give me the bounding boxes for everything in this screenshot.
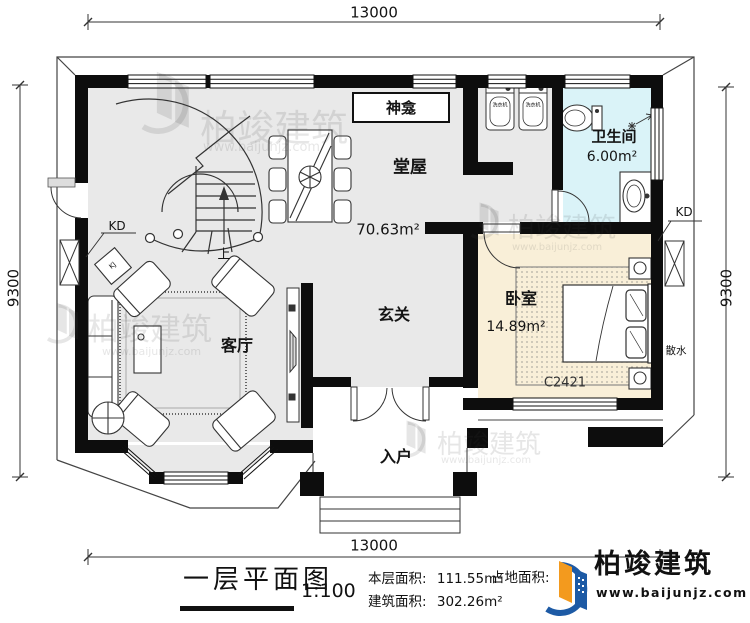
window-c2421: [513, 398, 617, 410]
room-area-bedroom: 14.89m²: [486, 320, 545, 334]
room-label-shrine: 神龛: [352, 92, 450, 123]
window: [488, 75, 526, 88]
brand-logo-icon: [539, 551, 595, 617]
room-label-main-hall: 堂屋: [393, 160, 427, 177]
window: [413, 75, 456, 88]
sofa: [88, 296, 118, 417]
room-label-living-room: 客厅: [221, 338, 253, 354]
porch-column: [453, 472, 477, 496]
build-area-value: 302.26m²: [437, 594, 503, 610]
window: [128, 75, 206, 88]
ac-outdoor-unit-right: [665, 241, 684, 286]
title-underline: [180, 606, 294, 611]
side-door-leaf: [48, 178, 75, 187]
floor-area-row: 本层面积: 111.55m²: [368, 573, 503, 587]
build-area-row: 建筑面积: 302.26m²: [368, 596, 503, 610]
washer-label: 洗衣机: [492, 104, 507, 109]
tv-cabinet: [287, 288, 299, 422]
ac-outdoor-unit-left: [60, 240, 79, 285]
brand-website: www.baijunjz.com: [596, 587, 748, 600]
build-area-label: 建筑面积:: [368, 594, 427, 610]
room-area-bathroom: 6.00m²: [587, 150, 637, 164]
pillow: [626, 327, 646, 358]
bedroom-door-leaf: [483, 224, 520, 232]
pillow: [626, 290, 646, 321]
plan-scale: 1:100: [301, 582, 356, 601]
room-label-bathroom: 卫生间: [591, 130, 636, 145]
room-area-main-hall: 70.63m²: [356, 223, 420, 238]
annotation-kd-left: KD: [108, 220, 125, 232]
window: [210, 75, 314, 88]
room-label-foyer: 玄关: [378, 307, 410, 323]
entry-door-leaf: [351, 387, 357, 420]
dining-table: [269, 130, 351, 223]
floor-plan-page: 柏竣建筑 www.baijunjz.com 柏竣建筑 www.baijunjz.…: [0, 0, 750, 623]
room-label-entry: 入户: [380, 449, 412, 465]
dimension-bottom: 13000: [350, 539, 398, 554]
wash-basin: [620, 172, 651, 226]
dimension-left: 9300: [7, 269, 22, 307]
round-side-table: [92, 402, 124, 434]
window: [651, 108, 663, 180]
dimension-right: 9300: [720, 269, 735, 307]
bathroom-door-leaf: [552, 190, 558, 222]
terrace-edge: [588, 427, 663, 447]
brand-name: 柏竣建筑: [594, 551, 714, 578]
annotation-window-code: C2421: [544, 377, 586, 390]
annotation-kd-right: KD: [675, 206, 692, 218]
window: [565, 75, 630, 88]
porch-column: [300, 472, 324, 496]
room-label-bedroom: 卧室: [505, 291, 537, 307]
floor-area-label: 本层面积:: [368, 571, 427, 587]
annotation-sanshui: 散水: [666, 346, 687, 357]
washer-label: 洗衣机: [525, 104, 540, 109]
entry-door-leaf: [423, 387, 429, 420]
dimension-top: 13000: [350, 6, 398, 21]
coffee-table: [134, 326, 161, 373]
double-bed: [563, 284, 654, 363]
annotation-stairs-up: 上: [217, 249, 230, 262]
